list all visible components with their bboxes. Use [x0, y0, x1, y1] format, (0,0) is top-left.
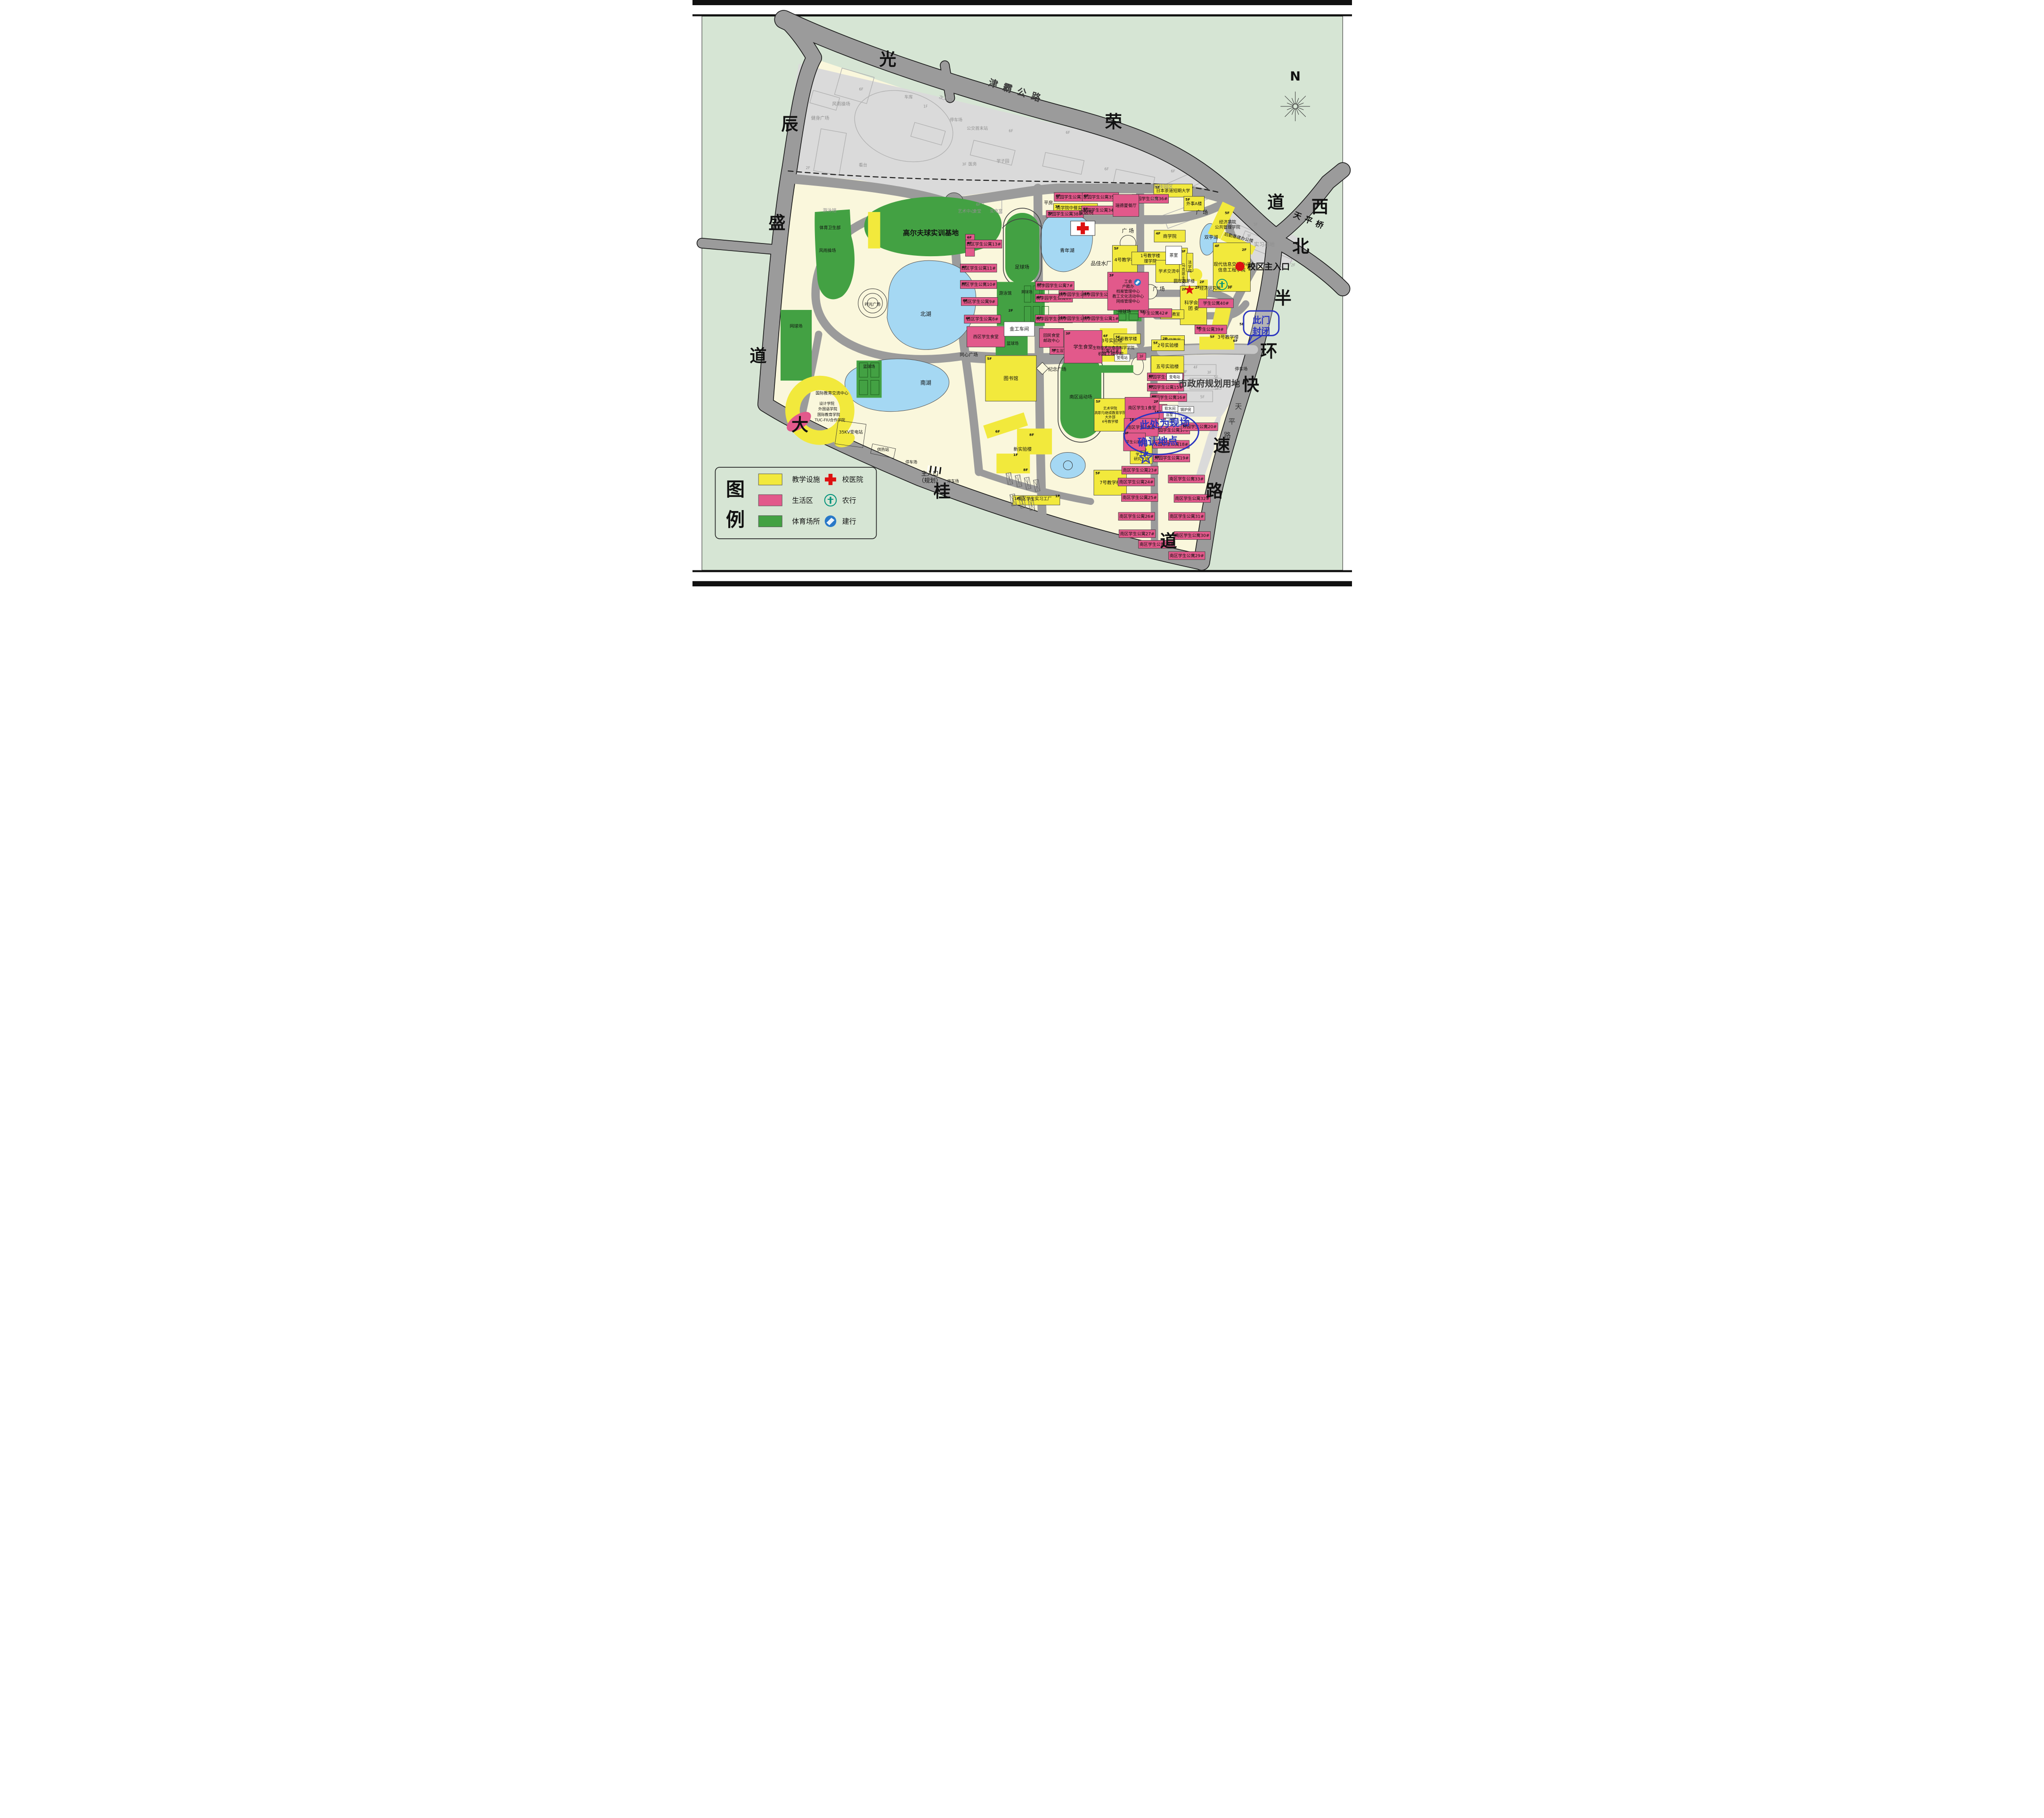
floor-tag: 6F	[1148, 384, 1153, 389]
map-label: 广 场	[1122, 227, 1133, 234]
existing-zone-label: 3F	[962, 162, 966, 167]
floor-tag: 2F	[1199, 280, 1204, 284]
floor-tag: 6F	[1233, 339, 1238, 343]
floor-tag: 6F	[966, 316, 970, 320]
building-living-label: 回民食堂邮政中心	[1043, 333, 1059, 343]
road-name-char: 荣	[1105, 112, 1122, 132]
road-name-char: 盛	[768, 213, 785, 233]
floor-tag: 6F	[961, 265, 966, 269]
main-entrance-dot	[1235, 262, 1244, 271]
building-living-label: 学生公寓42#	[1142, 310, 1168, 316]
building-service: 茶室	[1165, 246, 1181, 265]
building-living: 学生公寓40#	[1198, 299, 1233, 308]
building-living: 学生公寓39#5F	[1195, 325, 1227, 334]
legend-title: 例	[725, 509, 744, 531]
legend-label: 生活区	[792, 496, 813, 504]
map-label: 新实验楼	[1013, 446, 1032, 452]
legend-label: 农行	[842, 496, 856, 504]
legend-label: 教学设施	[792, 476, 820, 484]
floor-tag: 6F	[1083, 194, 1088, 198]
floor-tag: 6F	[961, 281, 966, 285]
building-living-label: 桃李园学生公寓7#	[1037, 283, 1073, 289]
compass-north-label: N	[1290, 69, 1301, 84]
floor-tag: 1F	[1055, 494, 1059, 498]
green-strip	[1099, 365, 1133, 373]
road-name-char: 道	[1160, 531, 1177, 551]
cross-h	[825, 478, 836, 482]
building-living: 西区学生公寓13#6F	[965, 240, 1002, 248]
floor-tag: 6F	[1037, 283, 1042, 287]
road-name-char: 道	[1267, 192, 1284, 212]
legend-label: 校医院	[842, 475, 863, 484]
frame-bar-top	[692, 0, 1352, 5]
floor-tag: 5F	[1224, 211, 1229, 215]
road	[945, 65, 950, 98]
building-living-label: 学生食堂	[1073, 344, 1092, 350]
ccb-bank-icon	[1134, 279, 1140, 285]
map-label: 网球场	[1021, 290, 1032, 294]
ccb-bank-icon	[824, 515, 836, 527]
map-label: 圆厅教学楼	[1173, 278, 1195, 284]
building-living-label: 家园学生公寓38#	[1047, 211, 1082, 217]
floor-tag: 5F	[1095, 471, 1100, 475]
building-living: 南区学生公寓23#	[1122, 466, 1158, 474]
existing-zone-label: 10F	[1151, 197, 1157, 201]
map-label: 篮球场	[1006, 341, 1018, 346]
campus-map-page: 商学院中餐实验中心3F日本茶道短期大学5F外事A楼5F4号教学楼5F1号教学楼理…	[692, 0, 1352, 586]
map-label: 经济研究所	[1199, 285, 1221, 291]
floor-tag: 6F	[1060, 292, 1065, 296]
map-label: 同心广场	[960, 352, 978, 358]
building-living: 桃李园学生公寓7#6F	[1035, 282, 1074, 290]
existing-zone-label: 游泳馆	[822, 208, 836, 213]
floor-tag: 6F	[1056, 194, 1060, 198]
map-label: 广 场	[1153, 285, 1165, 292]
floor-tag: 3F	[1066, 332, 1070, 336]
floor-tag: 4F	[1156, 231, 1160, 235]
existing-zone-label: 食堂	[972, 209, 981, 214]
building-service: 锅炉房	[1178, 406, 1194, 413]
cross-h	[1076, 226, 1088, 230]
building-living-label: 学生公寓40#	[1203, 300, 1229, 306]
building-teaching-label: 7号教学楼	[1099, 480, 1121, 486]
road-name-tianping-road: 路	[1223, 431, 1230, 439]
floor-tag: 5F	[1185, 197, 1190, 202]
map-label: 国际教育交流中心	[815, 390, 848, 396]
map-label: 35KV变电站	[839, 430, 863, 435]
existing-zone-label: 学子园	[996, 158, 1009, 164]
road-name-char: 道	[749, 346, 766, 366]
building-service-label: 金工车间	[1010, 326, 1029, 332]
building-living-label: 南区学生公寓30#	[1175, 533, 1209, 538]
floor-tag: 5F	[1153, 341, 1157, 345]
existing-zone-label: 5F	[1213, 375, 1218, 379]
building-living: 芳园学生公寓15#6F	[1147, 383, 1183, 391]
building-living-label: 西区学生公寓8#	[966, 317, 998, 322]
building-living-label: 南区学生公寓24#	[1119, 479, 1153, 485]
existing-zone-label: 艺术中心	[958, 209, 975, 214]
road-name-char: 桂	[933, 481, 950, 502]
building-living: 桃李园学生公寓1#6F	[1083, 315, 1118, 323]
campus-map-svg: 商学院中餐实验中心3F日本茶道短期大学5F外事A楼5F4号教学楼5F1号教学楼理…	[692, 0, 1352, 586]
floor-tag: 2F	[1153, 399, 1158, 404]
floor-tag: 2F	[1242, 247, 1246, 252]
gym-sports-health-dept	[814, 210, 855, 300]
floor-tag: 5F	[1096, 399, 1100, 404]
map-label: 体育卫生部	[819, 225, 840, 231]
abc-bar	[830, 497, 831, 504]
floor-tag: 2F	[1195, 285, 1200, 290]
map-label: 游泳馆	[999, 290, 1011, 296]
building-living-label: 瑞德厦餐厅	[1115, 203, 1136, 208]
floor-tag: 6F	[995, 429, 1000, 433]
legend-swatch-teaching	[758, 474, 782, 485]
map-label: 南区学生实习工厂	[1018, 496, 1051, 502]
existing-zone-label: 6F	[976, 203, 980, 207]
road-name-tianping-road: 平	[1228, 418, 1235, 426]
building-living-label: 西区学生公寓9#	[963, 299, 995, 304]
building-living-label: 南区学生公寓29#	[1169, 553, 1204, 559]
building-living-label: 南区学生公寓31#	[1169, 514, 1204, 519]
building-living: 西区学生公寓8#6F	[964, 315, 1000, 323]
building-living: 西区学生公寓10#6F	[960, 280, 996, 288]
building-living: 瑞德厦餐厅	[1113, 195, 1139, 217]
floor-tag: 2F	[1008, 308, 1013, 312]
building-living: 南区学生公寓27#	[1119, 530, 1155, 538]
building-service-label: 锅炉房	[1180, 407, 1191, 412]
building-living: 南区学生公寓31#	[1168, 512, 1205, 520]
existing-zone-label: 6F	[1009, 129, 1013, 133]
floor-tag: 3F	[1109, 273, 1114, 277]
map-label: 南区运动场	[1069, 394, 1092, 400]
floor-tag: 1F	[1013, 453, 1018, 457]
building-service-label: 软水间	[1165, 406, 1175, 411]
map-label: 北湖	[920, 310, 931, 317]
pond	[1050, 453, 1085, 479]
gate-closed-text: 封闭	[1252, 326, 1270, 337]
road-name-char: 光	[879, 49, 896, 70]
floor-tag: 5F	[1114, 246, 1118, 251]
map-label: 足球场	[1015, 264, 1029, 270]
existing-zone-label: 健身广场	[811, 115, 829, 121]
map-label: 高尔夫球实训基地	[903, 228, 959, 237]
legend-label: 体育场所	[792, 518, 820, 526]
existing-zone-label: 5F	[1214, 387, 1219, 391]
map-label: 机械工程学院	[1098, 351, 1123, 357]
existing-zone-label: 6F	[859, 87, 863, 91]
road-name-char: 大	[791, 415, 808, 435]
main-entrance-label: 校区主入口	[1247, 261, 1289, 272]
building-living-label: 南区学生公寓32#	[1175, 495, 1209, 501]
road-name-char: 辰	[781, 114, 798, 134]
map-label: 校医院	[1079, 209, 1093, 215]
building-living-label: 南区学生公寓26#	[1119, 514, 1154, 519]
road-name-char: 半	[1274, 288, 1291, 308]
floor-tag: 5F	[987, 357, 992, 361]
map-label: 篮球场	[863, 364, 875, 369]
building-living: 3F	[1137, 353, 1146, 360]
existing-zone-label: 停车场	[949, 117, 962, 122]
existing-zone-label: 1F	[923, 104, 927, 108]
road-name-char: 环	[1260, 341, 1277, 361]
existing-zone-label: 变电室	[990, 208, 1002, 214]
existing-zone-label: 3F	[1246, 234, 1251, 238]
existing-zone-label: 科技园区	[1153, 184, 1173, 190]
map-label: 青年湖	[1059, 248, 1074, 254]
existing-zone-label: 医务	[968, 162, 977, 167]
existing-zone-label: 5F	[1253, 222, 1257, 227]
floor-tag: 6F	[1103, 334, 1108, 338]
floor-tag: 6F	[1155, 455, 1159, 459]
floor-tag: 4F	[1214, 244, 1219, 248]
map-label: 停车场	[905, 460, 917, 464]
site-confirm-text: 确认地点	[1137, 435, 1178, 449]
map-label: 时光广场	[864, 302, 880, 307]
map-label: TUC-FIU合作学院	[814, 417, 845, 422]
map-label: 市政府规划用地	[1178, 379, 1240, 389]
floor-tag: 8F	[1023, 468, 1028, 472]
building-teaching: 法学院	[1186, 253, 1193, 273]
legend-label: 建行	[842, 518, 856, 526]
legend-swatch-living	[758, 495, 782, 506]
floor-tag: 8F	[1029, 432, 1034, 437]
map-label: 外国语学院	[818, 406, 837, 411]
existing-zone-label: 实习基地	[1254, 241, 1274, 248]
map-label: 风雨操场	[819, 248, 836, 253]
floor-tag: 6F	[962, 298, 967, 302]
existing-zone-label: 看台	[859, 162, 867, 168]
road-name-char: 北	[1292, 236, 1309, 257]
building-teaching-label: 商学院	[1163, 234, 1176, 239]
building-teaching-label: 图书馆	[1003, 375, 1018, 381]
building-service: 软水间	[1162, 406, 1178, 412]
existing-zone-label: 5F	[1200, 395, 1204, 399]
building-living: 南区学生公寓32#	[1174, 495, 1210, 503]
building-living: 回民食堂邮政中心	[1039, 328, 1064, 347]
building-teaching-label: 五号实验楼	[1156, 364, 1179, 370]
building-living-label: 3F	[1139, 355, 1143, 359]
road-name-tianping-road: 天	[1235, 403, 1242, 411]
map-label: 国际教育学院	[817, 412, 839, 417]
map-label: 供热站	[877, 447, 889, 452]
existing-zone-label: 6F	[1104, 167, 1108, 171]
map-label: 平房	[1044, 200, 1053, 206]
floor-tag: 5F	[1196, 326, 1201, 330]
floor-tag: 6F	[1084, 316, 1089, 320]
building-teaching: 2号实验楼5F	[1151, 340, 1184, 350]
floor-tag: 5F	[1210, 335, 1214, 339]
football-field	[1005, 213, 1039, 284]
building-living-label: 南区学生公寓27#	[1120, 531, 1154, 536]
building-teaching: 艺术学院高职与继续教育学院大外部6号教学楼5F	[1094, 398, 1126, 431]
building-living: 南区学生公寓24#	[1118, 478, 1154, 486]
gate-closed-text: 此门	[1252, 316, 1270, 326]
floor-tag: 3F	[1051, 348, 1056, 352]
map-label: 双亭湖	[1204, 235, 1218, 240]
building-living-label: 南区学生公寓33#	[1169, 476, 1204, 482]
building-living: 南区学生公寓26#	[1118, 512, 1155, 520]
building-living: 西区学生公寓9#6F	[961, 297, 997, 305]
map-label: 停车场	[1235, 366, 1247, 372]
building-living: 工会户籍办档案管理中心教工文化活动中心网络管理中心3F	[1108, 272, 1148, 310]
existing-zone-label: 6F	[1171, 169, 1175, 173]
building-teaching: 图书馆5F	[985, 356, 1036, 401]
floor-tag: 3F	[1055, 204, 1059, 209]
building-living-label: 西区学生食堂	[973, 334, 998, 340]
building-living-label: 南区学生公寓25#	[1122, 495, 1156, 501]
legend-swatch-sports	[758, 516, 782, 527]
existing-zone-label: 2F	[806, 166, 810, 170]
building-service-label: 变电站	[1169, 374, 1180, 379]
map-label: 南湖	[920, 379, 931, 386]
abc-bar	[1221, 281, 1222, 288]
building-teaching: 商学院4F	[1154, 230, 1185, 242]
floor-tag: 6F	[1084, 292, 1089, 296]
golf-strip-building	[868, 212, 880, 248]
map-label: 品佳水厂	[1091, 260, 1111, 267]
existing-zone-label: 4F	[1193, 365, 1197, 369]
building-teaching-label: 外事A楼	[1186, 201, 1202, 207]
map-label: 生物技术与食品科学学院	[1092, 345, 1134, 350]
map-label: 设计学院	[819, 401, 834, 406]
frame-bar-bottom	[692, 581, 1352, 587]
abc-tick	[1219, 283, 1224, 284]
building-living: 西区学生食堂	[967, 326, 1005, 347]
map-label: 排球场	[1118, 309, 1131, 315]
building-living-label: 学生公寓39#	[1197, 327, 1223, 333]
map-label: 网球场	[790, 323, 802, 329]
floor-tag: 6F	[1148, 374, 1153, 378]
floor-tag: 6F	[967, 241, 971, 245]
floor-tag: 6F	[967, 235, 971, 239]
building-living: 南区学生公寓30#	[1174, 532, 1210, 540]
legend-title: 图	[725, 479, 744, 500]
building-teaching-label: 法学院	[1188, 260, 1191, 273]
building-living-label: 南区学生1食堂	[1128, 405, 1156, 411]
road-name-char: 西	[1311, 197, 1328, 217]
existing-zone-label: 6F	[1066, 130, 1070, 135]
building-living-label: 南区学生公寓23#	[1123, 467, 1157, 473]
building-service-label: 茶室	[1169, 252, 1178, 258]
existing-zone-label: 3F	[1207, 371, 1211, 375]
building-living: 西区学生公寓11#6F	[960, 264, 996, 272]
building-living: 家园学生公寓38#7F	[1046, 211, 1083, 218]
building-living: 南区学生公寓33#	[1168, 475, 1204, 483]
tennis-courts-west	[780, 310, 811, 381]
existing-zone-label: 2F	[1291, 263, 1295, 267]
road-name-char: 路	[1205, 481, 1223, 501]
floor-tag: 3F	[1227, 285, 1232, 289]
abc-tick	[827, 499, 833, 500]
map-label: 纪念广场	[1048, 366, 1067, 372]
building-teaching-label: 2号实验楼	[1157, 342, 1178, 348]
existing-zone-label: 3F	[1182, 370, 1187, 374]
floor-tag: 6F	[1037, 295, 1042, 300]
existing-zone-label: 车库	[904, 94, 912, 100]
frame-line-bottom	[692, 570, 1352, 572]
building-living: 南区学生公寓25#	[1121, 494, 1157, 502]
floor-tag: 6F	[1037, 316, 1042, 320]
map-label: 3号实验楼	[1101, 338, 1123, 344]
floor-tag: 7F	[1048, 211, 1052, 216]
building-living: 南区学生公寓29#	[1168, 552, 1205, 560]
existing-zone-label: 风雨操场	[832, 101, 850, 107]
map-label: 广 场	[1196, 209, 1207, 215]
building-living: 芳园学生公寓19#6F	[1153, 454, 1189, 462]
existing-zone-label: 公交首末站	[967, 126, 988, 131]
building-service: 金工车间	[1004, 322, 1034, 336]
building-teaching: 外事A楼5F	[1183, 196, 1204, 211]
floor-tag: 6F	[1060, 316, 1065, 320]
road-name-char: 快	[1242, 374, 1259, 395]
